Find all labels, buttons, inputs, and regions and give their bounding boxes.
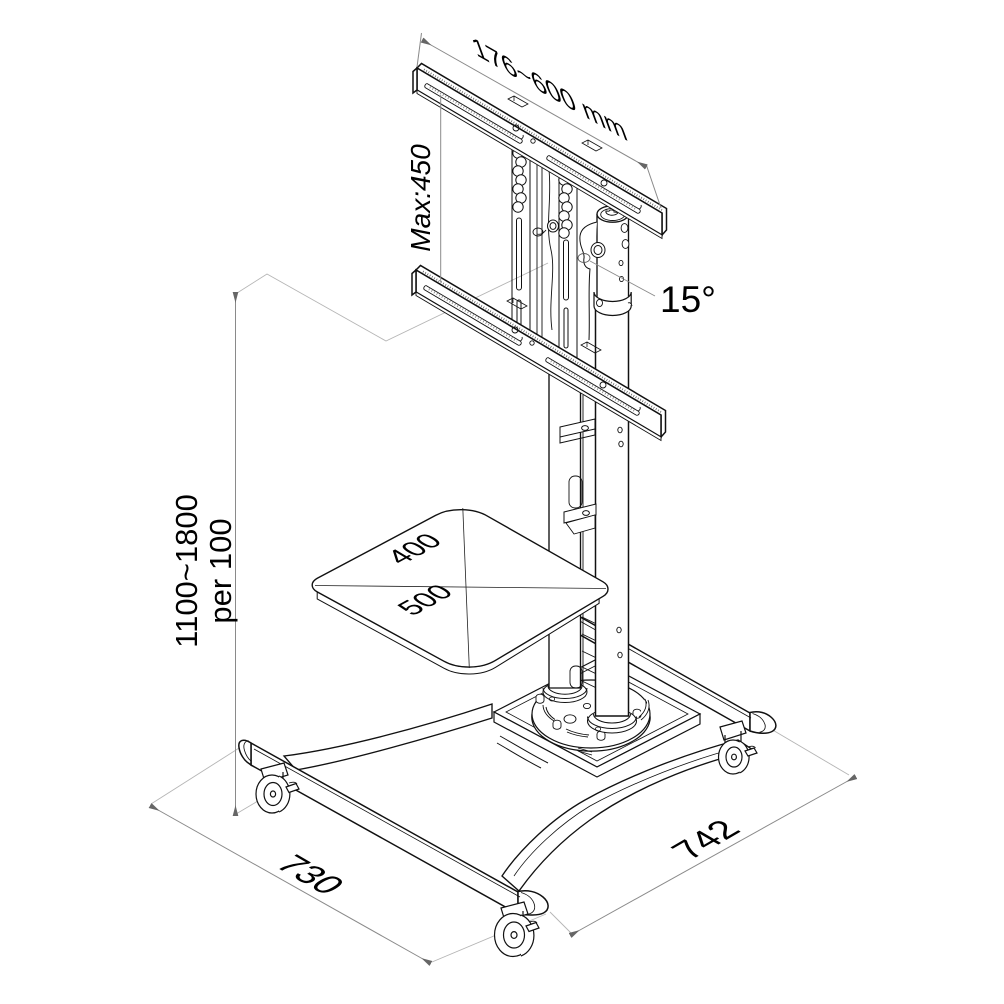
svg-text:Max:450: Max:450 (405, 144, 436, 252)
svg-text:per 100: per 100 (203, 518, 238, 623)
svg-text:1100~1800: 1100~1800 (169, 494, 204, 648)
svg-text:15°: 15° (660, 279, 716, 320)
